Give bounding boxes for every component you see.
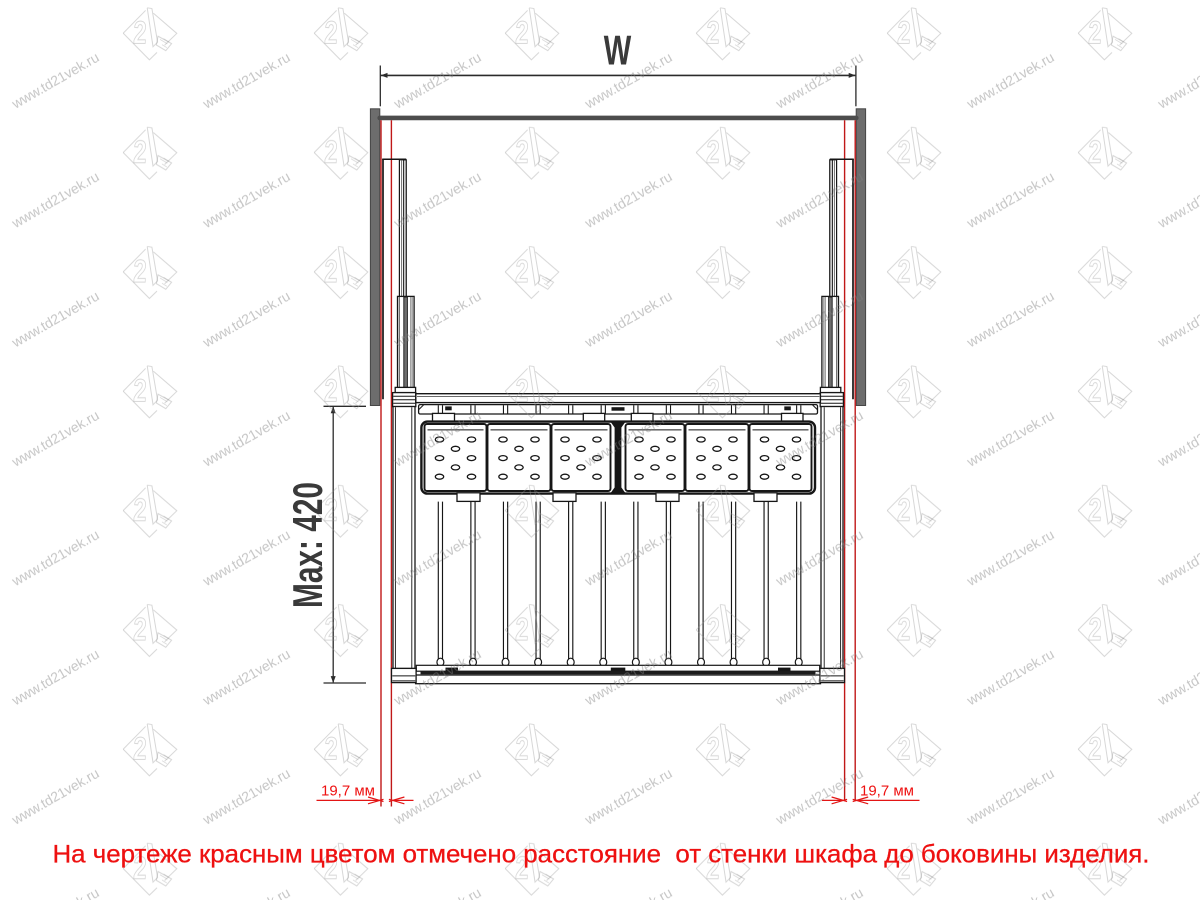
- svg-text:На чертеже красным цветом отме: На чертеже красным цветом отмечено расст…: [53, 841, 1150, 869]
- svg-text:Max: 420: Max: 420: [284, 482, 331, 608]
- svg-text:W: W: [604, 27, 632, 74]
- svg-text:19,7 мм: 19,7 мм: [860, 783, 914, 800]
- svg-text:19,7 мм: 19,7 мм: [321, 783, 375, 800]
